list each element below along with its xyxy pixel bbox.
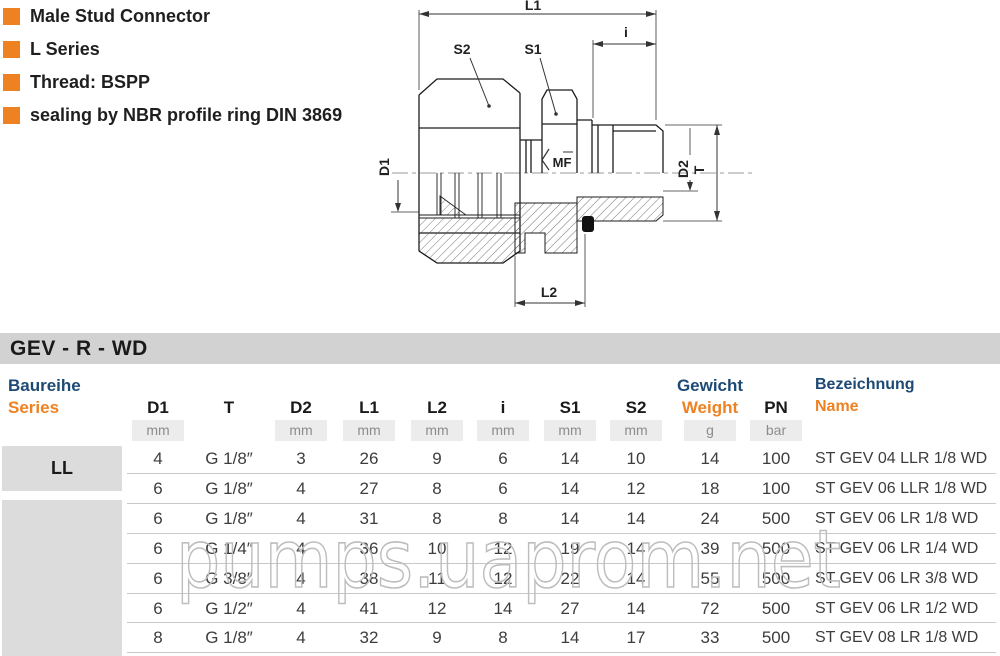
table-row: 8 G 1/8″ 4 32 9 8 14 17 33 500 ST GEV 08… [0,623,1000,652]
col-header-name: Name [815,398,859,416]
section-title-bar: GEV - R - WD [0,333,1000,364]
cell-t: G 1/8″ [205,444,253,473]
cell-l1: 31 [360,504,379,533]
cell-t: G 1/8″ [205,474,253,503]
cell-weight: 33 [701,623,720,652]
cell-l1: 32 [360,623,379,652]
cell-d2: 4 [296,474,305,503]
nbr-profile-ring [582,216,594,232]
bullet-square-icon [3,41,20,58]
dim-label-l2: L2 [541,284,558,300]
col-header-weight: Weight [682,398,738,418]
cell-t: G 3/8″ [205,564,253,593]
cell-l1: 41 [360,594,379,623]
cell-weight: 14 [701,444,720,473]
cell-i: 6 [498,444,507,473]
col-header-s2: S2 [626,398,647,418]
cell-s1: 22 [561,564,580,593]
feature-label: Thread: BSPP [30,72,150,93]
feature-item: Thread: BSPP [3,72,150,93]
feature-label: Male Stud Connector [30,6,210,27]
dim-label-d1: D1 [376,158,392,176]
cell-pn: 500 [762,623,790,652]
cell-l2: 8 [432,474,441,503]
cell-pn: 100 [762,474,790,503]
cell-s1: 14 [561,504,580,533]
table-row: 6 G 1/8″ 4 27 8 6 14 12 18 100 ST GEV 06… [0,474,1000,503]
cell-name: ST GEV 06 LR 1/4 WD [815,534,978,563]
unit-label: mm [343,420,395,441]
col-header-gewicht: Gewicht [677,376,743,396]
catalog-page: Male Stud Connector L Series Thread: BSP… [0,0,1000,656]
cell-d2: 4 [296,534,305,563]
bullet-square-icon [3,74,20,91]
table-row: 6 G 1/4″ 4 36 10 12 19 14 39 500 ST GEV … [0,534,1000,563]
series-header-en: Series [8,398,59,418]
dim-label-i: i [624,24,628,40]
cell-weight: 24 [701,504,720,533]
unit-label: mm [610,420,662,441]
table-row: 4 G 1/8″ 3 26 9 6 14 10 14 100 ST GEV 04… [0,444,1000,473]
cell-i: 12 [494,534,513,563]
cell-weight: 55 [701,564,720,593]
cell-i: 8 [498,623,507,652]
feature-label: L Series [30,39,100,60]
col-header-s1: S1 [560,398,581,418]
unit-label: mm [477,420,529,441]
table-bottom-divider [127,652,996,653]
cell-i: 12 [494,564,513,593]
cell-s1: 14 [561,474,580,503]
table-row: 6 G 1/2″ 4 41 12 14 27 14 72 500 ST GEV … [0,594,1000,623]
dim-label-s2: S2 [453,41,470,57]
cell-pn: 500 [762,534,790,563]
cell-i: 6 [498,474,507,503]
dim-label-s1: S1 [524,41,541,57]
cell-l1: 36 [360,534,379,563]
bullet-square-icon [3,8,20,25]
cell-s1: 14 [561,623,580,652]
cell-s1: 14 [561,444,580,473]
mf-marking: MF [553,155,572,170]
cell-s1: 19 [561,534,580,563]
unit-label: mm [132,420,184,441]
feature-item: sealing by NBR profile ring DIN 3869 [3,105,342,126]
cell-i: 8 [498,504,507,533]
cell-l1: 38 [360,564,379,593]
cell-i: 14 [494,594,513,623]
feature-item: L Series [3,39,100,60]
cell-weight: 18 [701,474,720,503]
series-header-de: Baureihe [8,376,81,396]
cell-d2: 3 [296,444,305,473]
cell-l2: 12 [428,594,447,623]
cell-d1: 4 [153,444,162,473]
cell-name: ST GEV 08 LR 1/8 WD [815,623,978,652]
cell-pn: 500 [762,594,790,623]
col-header-bezeichnung: Bezeichnung [815,376,915,394]
cell-weight: 72 [701,594,720,623]
cell-name: ST GEV 06 LLR 1/8 WD [815,474,987,503]
cell-s2: 14 [627,594,646,623]
cell-d2: 4 [296,623,305,652]
unit-label: bar [750,420,802,441]
cell-s2: 10 [627,444,646,473]
dim-label-l1: L1 [525,0,542,13]
col-header-d1: D1 [147,398,169,418]
unit-label: mm [544,420,596,441]
cell-l2: 9 [432,623,441,652]
cell-t: G 1/8″ [205,623,253,652]
cell-pn: 500 [762,564,790,593]
cell-s2: 14 [627,534,646,563]
cell-l2: 8 [432,504,441,533]
col-header-l2: L2 [427,398,447,418]
cell-name: ST GEV 06 LR 1/8 WD [815,504,978,533]
feature-item: Male Stud Connector [3,6,210,27]
cell-pn: 500 [762,504,790,533]
table-row: 6 G 1/8″ 4 31 8 8 14 14 24 500 ST GEV 06… [0,504,1000,533]
connector-technical-drawing: L1 i S2 S1 D1 D2 T L2 MF [0,0,1000,330]
col-header-d2: D2 [290,398,312,418]
dim-label-t: T [691,165,707,174]
unit-label: g [684,420,736,441]
cell-l2: 11 [428,564,446,593]
col-header-l1: L1 [359,398,379,418]
cell-name: ST GEV 06 LR 3/8 WD [815,564,978,593]
bullet-square-icon [3,107,20,124]
cell-s1: 27 [561,594,580,623]
unit-label: mm [411,420,463,441]
cell-d2: 4 [296,504,305,533]
unit-label: mm [275,420,327,441]
cell-s2: 14 [627,504,646,533]
cell-d2: 4 [296,564,305,593]
dim-label-d2: D2 [675,160,691,178]
cell-t: G 1/4″ [205,534,253,563]
cell-name: ST GEV 06 LR 1/2 WD [815,594,978,623]
section-title: GEV - R - WD [0,333,1000,364]
cell-pn: 100 [762,444,790,473]
cell-d1: 8 [153,623,162,652]
col-header-i: i [501,398,506,418]
cell-l1: 27 [360,474,379,503]
cell-s2: 14 [627,564,646,593]
cell-d2: 4 [296,594,305,623]
cell-t: G 1/2″ [205,594,253,623]
cell-weight: 39 [701,534,720,563]
cell-d1: 6 [153,504,162,533]
cell-l1: 26 [360,444,379,473]
table-row: 6 G 3/8″ 4 38 11 12 22 14 55 500 ST GEV … [0,564,1000,593]
cell-d1: 6 [153,534,162,563]
cell-s2: 12 [627,474,646,503]
cell-l2: 9 [432,444,441,473]
cell-d1: 6 [153,564,162,593]
cell-s2: 17 [627,623,646,652]
col-header-pn: PN [764,398,788,418]
cell-l2: 10 [428,534,447,563]
cell-name: ST GEV 04 LLR 1/8 WD [815,444,987,473]
cell-d1: 6 [153,594,162,623]
cell-t: G 1/8″ [205,504,253,533]
col-header-t: T [224,398,234,418]
feature-label: sealing by NBR profile ring DIN 3869 [30,105,342,126]
cell-d1: 6 [153,474,162,503]
